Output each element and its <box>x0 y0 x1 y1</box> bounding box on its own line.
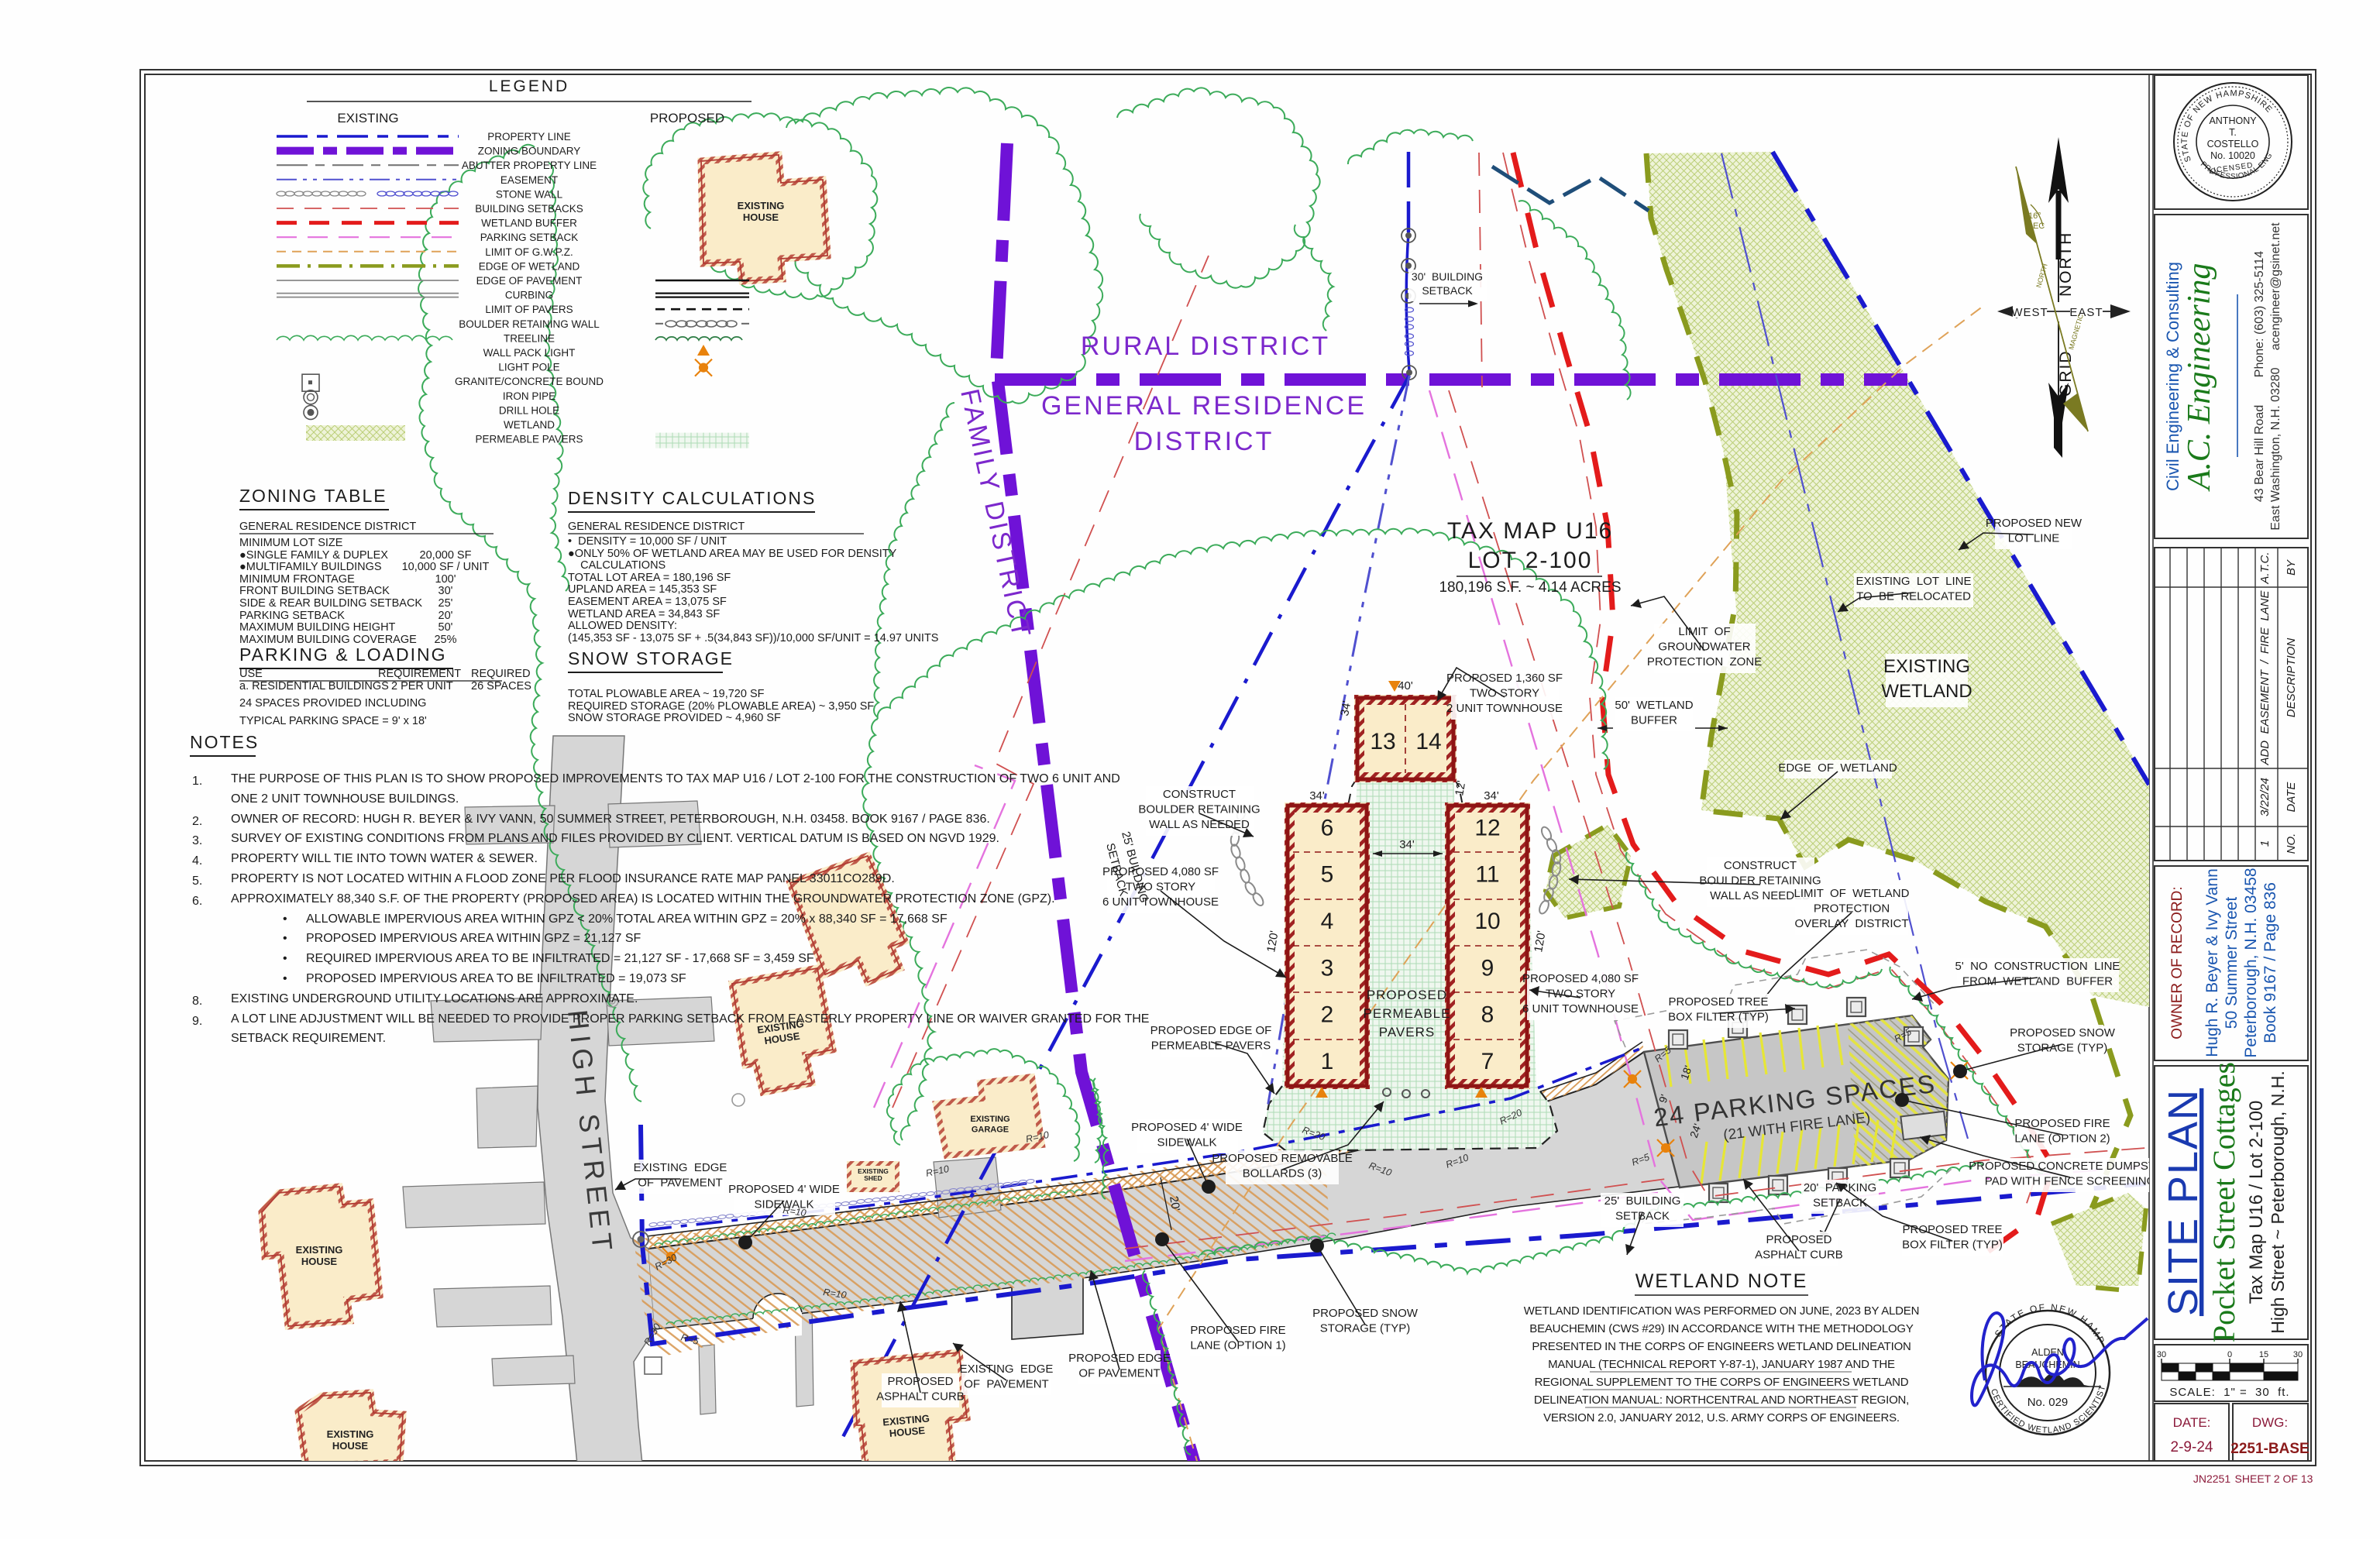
svg-text:BEAUCHEMIN (CWS #29) IN ACCORD: BEAUCHEMIN (CWS #29) IN ACCORDANCE WITH … <box>1529 1322 1914 1335</box>
svg-text:2.: 2. <box>192 815 202 828</box>
svg-text:180,196 S.F. ~ 4.14 ACRES: 180,196 S.F. ~ 4.14 ACRES <box>1439 579 1621 596</box>
svg-text:2-9-24: 2-9-24 <box>2171 1439 2213 1455</box>
svg-text:100': 100' <box>435 573 456 586</box>
svg-text:26 SPACES: 26 SPACES <box>471 680 531 692</box>
svg-text:3.: 3. <box>192 834 202 847</box>
svg-text:12': 12' <box>1453 779 1468 796</box>
svg-text:GENERAL RESIDENCE DISTRICT: GENERAL RESIDENCE DISTRICT <box>568 521 745 533</box>
svg-text:4.: 4. <box>192 854 202 868</box>
svg-text:WEST: WEST <box>2011 306 2048 319</box>
svg-text:EAST: EAST <box>2069 306 2103 319</box>
svg-text:NOTES: NOTES <box>190 732 259 752</box>
svg-text:Tax Map U16 / Lot 2-100: Tax Map U16 / Lot 2-100 <box>2246 1101 2267 1304</box>
svg-text:WETLAND AREA = 34,843 SF: WETLAND AREA = 34,843 SF <box>568 608 720 620</box>
svg-text:1.: 1. <box>192 775 202 788</box>
svg-text:TAX MAP U16: TAX MAP U16 <box>1447 518 1613 544</box>
svg-text:EXISTINGHOUSE: EXISTINGHOUSE <box>882 1412 931 1439</box>
svg-text:CALCULATIONS: CALCULATIONS <box>568 559 666 572</box>
svg-text:•: • <box>283 932 287 945</box>
svg-text:• DENSITY = 10,000 SF / UNIT: • DENSITY = 10,000 SF / UNIT <box>568 535 727 548</box>
svg-text:8.: 8. <box>192 995 202 1008</box>
svg-text:13: 13 <box>1370 729 1395 754</box>
svg-text:5: 5 <box>1321 862 1334 888</box>
svg-text:East Washington, N.H. 03280: East Washington, N.H. 03280 acengineer@g… <box>2269 222 2282 531</box>
svg-text:SETBACK REQUIREMENT.: SETBACK REQUIREMENT. <box>231 1032 386 1045</box>
svg-text:EASEMENT AREA = 13,075 SF: EASEMENT AREA = 13,075 SF <box>568 596 727 608</box>
svg-text:Civil Engineering & Consulting: Civil Engineering & Consulting <box>2163 262 2182 491</box>
svg-text:ADD EASEMENT / FIRE LANE: ADD EASEMENT / FIRE LANE <box>2258 589 2272 765</box>
svg-text:PARKING SETBACK: PARKING SETBACK <box>239 610 345 622</box>
svg-text:15: 15 <box>2259 1350 2268 1359</box>
svg-text:EXISTINGHOUSE: EXISTINGHOUSE <box>327 1428 374 1452</box>
svg-text:PROPOSED IMPERVIOUS AREA TO BE: PROPOSED IMPERVIOUS AREA TO BE INFILTRAT… <box>306 972 686 985</box>
svg-text:30: 30 <box>2157 1350 2166 1359</box>
svg-text:0: 0 <box>2227 1350 2232 1359</box>
svg-text:•: • <box>283 912 287 926</box>
svg-text:1: 1 <box>1321 1049 1334 1074</box>
svg-text:EXISTINGHOUSE: EXISTINGHOUSE <box>738 200 785 223</box>
svg-text:Peterborough, N.H. 03458: Peterborough, N.H. 03458 <box>2242 868 2260 1057</box>
svg-text:REQUIRED IMPERVIOUS AREA TO BE: REQUIRED IMPERVIOUS AREA TO BE INFILTRAT… <box>306 952 814 965</box>
svg-text:20,000 SF: 20,000 SF <box>420 549 472 562</box>
svg-text:SIDE & REAR BUILDING SETBACK: SIDE & REAR BUILDING SETBACK <box>239 597 422 610</box>
svg-text:APPROXIMATELY 88,340 S.F. OF T: APPROXIMATELY 88,340 S.F. OF THE PROPERT… <box>231 892 1055 906</box>
svg-text:PRESENTED IN THE CORPS OF ENGI: PRESENTED IN THE CORPS OF ENGINEERS WETL… <box>1532 1340 1911 1353</box>
svg-text:11: 11 <box>1475 862 1499 888</box>
svg-text:BY: BY <box>2285 559 2298 576</box>
svg-text:REGIONAL SUPPLEMENT TO THE COR: REGIONAL SUPPLEMENT TO THE CORPS OF ENGI… <box>1535 1376 1909 1389</box>
svg-text:(145,353 SF - 13,075 SF + .5(3: (145,353 SF - 13,075 SF + .5(34,843 SF))… <box>568 632 938 644</box>
svg-text:50 Summer Street: 50 Summer Street <box>2223 897 2241 1029</box>
svg-text:ONE 2 UNIT TOWNHOUSE BUILDINGS: ONE 2 UNIT TOWNHOUSE BUILDINGS. <box>231 792 459 806</box>
svg-text:A.T.C.: A.T.C. <box>2258 552 2272 584</box>
svg-text:A.C. Engineering: A.C. Engineering <box>2182 263 2217 493</box>
svg-text:OWNER OF RECORD: HUGH R. BEYER: OWNER OF RECORD: HUGH R. BEYER & IVY VAN… <box>231 813 990 826</box>
svg-text:OWNER OF RECORD:: OWNER OF RECORD: <box>2169 886 2186 1039</box>
svg-text:Book 9167 / Page 836: Book 9167 / Page 836 <box>2261 882 2279 1043</box>
svg-text:A LOT LINE ADJUSTMENT WILL BE: A LOT LINE ADJUSTMENT WILL BE NEEDED TO … <box>231 1012 1149 1026</box>
svg-text:JN2251: JN2251 <box>2193 1473 2230 1485</box>
svg-text:REQUIREMENT: REQUIREMENT <box>378 668 461 680</box>
svg-text:5.: 5. <box>192 875 202 888</box>
svg-text:16°: 16° <box>2028 211 2041 221</box>
svg-text:LEGEND: LEGEND <box>489 77 569 95</box>
svg-text:3/22/24: 3/22/24 <box>2258 778 2272 816</box>
svg-text:WETLAND IDENTIFICATION WAS PER: WETLAND IDENTIFICATION WAS PERFORMED ON … <box>1524 1304 1920 1318</box>
svg-text:SHEET 2 OF 13: SHEET 2 OF 13 <box>2235 1473 2313 1485</box>
svg-text:DATE:: DATE: <box>2173 1415 2211 1430</box>
svg-text:34': 34' <box>1484 789 1499 802</box>
svg-text:8: 8 <box>1481 1002 1494 1028</box>
svg-text:4: 4 <box>1321 909 1334 934</box>
svg-text:Pocket Street Cottages: Pocket Street Cottages <box>2206 1062 2241 1342</box>
svg-text:3: 3 <box>1321 955 1334 981</box>
svg-text:●ONLY 50% OF WETLAND AREA MAY: ●ONLY 50% OF WETLAND AREA MAY BE USED FO… <box>568 548 897 560</box>
svg-text:10,000 SF / UNIT: 10,000 SF / UNIT <box>402 561 490 573</box>
svg-text:TOTAL LOT AREA = 180,196 SF: TOTAL LOT AREA = 180,196 SF <box>568 572 731 584</box>
svg-text:RURAL DISTRICT: RURAL DISTRICT <box>1081 332 1330 361</box>
svg-text:PROPOSED IMPERVIOUS AREA WITHI: PROPOSED IMPERVIOUS AREA WITHIN GPZ = 21… <box>306 932 641 945</box>
svg-text:14: 14 <box>1415 729 1441 754</box>
svg-text:FRONT BUILDING SETBACK: FRONT BUILDING SETBACK <box>239 585 390 597</box>
svg-text:SCALE: 1" = 30 ft.: SCALE: 1" = 30 ft. <box>2169 1386 2289 1399</box>
svg-text:ANTHONYT.COSTELLONo. 10020: ANTHONYT.COSTELLONo. 10020 <box>2207 115 2259 161</box>
svg-text:PROPERTY WILL TIE INTO TOWN WA: PROPERTY WILL TIE INTO TOWN WATER & SEWE… <box>231 852 538 865</box>
svg-text:34': 34' <box>1399 838 1415 851</box>
svg-text:30: 30 <box>2293 1350 2303 1359</box>
svg-text:High Street ~ Peterborough, N.: High Street ~ Peterborough, N.H. <box>2268 1070 2288 1333</box>
svg-text:USE: USE <box>239 668 263 680</box>
svg-text:MINIMUM FRONTAGE: MINIMUM FRONTAGE <box>239 573 355 586</box>
svg-text:●SINGLE FAMILY & DUPLEX: ●SINGLE FAMILY & DUPLEX <box>239 549 388 562</box>
svg-text:EXISTINGGARAGE: EXISTINGGARAGE <box>970 1115 1009 1134</box>
svg-text:DEC: DEC <box>2027 222 2045 231</box>
svg-text:WETLAND NOTE: WETLAND NOTE <box>1635 1270 1808 1292</box>
svg-text:VERSION 2.0, JANUARY 2012, U.S: VERSION 2.0, JANUARY 2012, U.S. ARMY COR… <box>1543 1411 1900 1424</box>
svg-text:20': 20' <box>439 610 453 622</box>
svg-text:TOTAL PLOWABLE AREA ~ 19,720 S: TOTAL PLOWABLE AREA ~ 19,720 SF <box>568 688 765 700</box>
svg-text:10: 10 <box>1474 909 1500 934</box>
svg-text:1: 1 <box>2258 840 2272 847</box>
svg-text:MANUAL (TECHNICAL REPORT Y-87-: MANUAL (TECHNICAL REPORT Y-87-1), JANUAR… <box>1548 1358 1895 1371</box>
svg-text:9: 9 <box>1481 955 1494 981</box>
svg-text:•: • <box>283 952 287 965</box>
svg-text:PARKING & LOADING: PARKING & LOADING <box>239 644 446 665</box>
svg-text:SURVEY OF EXISTING CONDITIONS: SURVEY OF EXISTING CONDITIONS FROM PLANS… <box>231 832 999 845</box>
svg-text:TYPICAL PARKING SPACE = 9' x 1: TYPICAL PARKING SPACE = 9' x 18' <box>239 715 427 727</box>
svg-text:●MULTIFAMILY BUILDINGS: ●MULTIFAMILY BUILDINGS <box>239 561 382 573</box>
svg-text:2: 2 <box>1321 1002 1334 1028</box>
svg-text:NORTH: NORTH <box>2057 232 2075 297</box>
svg-text:30': 30' <box>439 585 453 597</box>
svg-text:Hugh R. Beyer & Ivy Vann: Hugh R. Beyer & Ivy Vann <box>2203 868 2221 1057</box>
svg-text:SNOW STORAGE: SNOW STORAGE <box>568 648 734 668</box>
svg-text:43 Bear Hill Road Phone: 43 Bear Hill Road Phone: (603) 325-5114 <box>2253 251 2266 502</box>
svg-text:a. RESIDENTIAL BUILDINGS: a. RESIDENTIAL BUILDINGS <box>239 680 389 692</box>
svg-text:7: 7 <box>1481 1049 1494 1074</box>
svg-text:ZONING TABLE: ZONING TABLE <box>239 486 387 506</box>
svg-text:DELINEATION MANUAL: NORTHCENTR: DELINEATION MANUAL: NORTHCENTRAL AND NOR… <box>1534 1394 1909 1407</box>
svg-text:EXISTING UNDERGROUND UTILITY L: EXISTING UNDERGROUND UTILITY LOCATIONS A… <box>231 992 638 1005</box>
svg-text:THE PURPOSE OF THIS PLAN IS TO: THE PURPOSE OF THIS PLAN IS TO SHOW PROP… <box>231 772 1120 785</box>
svg-text:ALLOWABLE IMPERVIOUS AREA WITH: ALLOWABLE IMPERVIOUS AREA WITHIN GPZ < 2… <box>306 912 948 926</box>
svg-text:DWG:: DWG: <box>2252 1415 2288 1430</box>
svg-text:REQUIRED STORAGE (20% PLOWABLE: REQUIRED STORAGE (20% PLOWABLE AREA) ~ 3… <box>568 700 874 713</box>
svg-text:25': 25' <box>439 597 453 610</box>
svg-text:40': 40' <box>1398 679 1413 692</box>
svg-text:24 SPACES PROVIDED INCLUDING: 24 SPACES PROVIDED INCLUDING <box>239 697 426 710</box>
svg-text:MINIMUM LOT SIZE: MINIMUM LOT SIZE <box>239 537 343 549</box>
svg-text:9.: 9. <box>192 1015 202 1028</box>
svg-text:DENSITY CALCULATIONS: DENSITY CALCULATIONS <box>568 488 816 508</box>
svg-text:ALLOWED DENSITY:: ALLOWED DENSITY: <box>568 620 677 632</box>
svg-text:SITE PLAN: SITE PLAN <box>2160 1088 2206 1316</box>
svg-text:•: • <box>283 972 287 985</box>
svg-text:LOT 2-100: LOT 2-100 <box>1468 548 1593 573</box>
svg-text:PROPERTY IS NOT LOCATED WITHIN: PROPERTY IS NOT LOCATED WITHIN A FLOOD Z… <box>231 872 895 885</box>
svg-text:UPLAND AREA = 145,353 SF: UPLAND AREA = 145,353 SF <box>568 583 717 596</box>
svg-text:12: 12 <box>1474 815 1500 840</box>
svg-text:2 PER UNIT: 2 PER UNIT <box>391 680 453 692</box>
svg-text:REQUIRED: REQUIRED <box>471 668 531 680</box>
svg-text:PROPOSED: PROPOSED <box>650 111 724 125</box>
svg-text:EDGE OF WETLAND: EDGE OF WETLAND <box>1778 761 1897 775</box>
svg-text:EXISTING: EXISTING <box>337 111 398 125</box>
svg-text:SNOW STORAGE PROVIDED ~ 4,960: SNOW STORAGE PROVIDED ~ 4,960 SF <box>568 712 781 724</box>
svg-text:EXISTINGHOUSE: EXISTINGHOUSE <box>296 1244 343 1267</box>
svg-text:20': 20' <box>1167 1195 1182 1212</box>
svg-text:GENERAL RESIDENCE DISTRICT: GENERAL RESIDENCE DISTRICT <box>239 521 416 533</box>
svg-text:NO.: NO. <box>2285 833 2298 854</box>
svg-text:34': 34' <box>1309 789 1325 802</box>
svg-text:6.: 6. <box>192 895 202 908</box>
svg-text:2251-BASE: 2251-BASE <box>2230 1441 2309 1457</box>
svg-text:34': 34' <box>1338 699 1353 717</box>
svg-text:50': 50' <box>439 621 453 634</box>
svg-text:MAXIMUM BUILDING HEIGHT: MAXIMUM BUILDING HEIGHT <box>239 621 396 634</box>
svg-text:No. 029: No. 029 <box>2027 1396 2069 1409</box>
svg-text:DESCRIPTION: DESCRIPTION <box>2285 638 2298 718</box>
svg-text:6: 6 <box>1321 815 1334 840</box>
svg-text:DATE: DATE <box>2285 782 2298 813</box>
